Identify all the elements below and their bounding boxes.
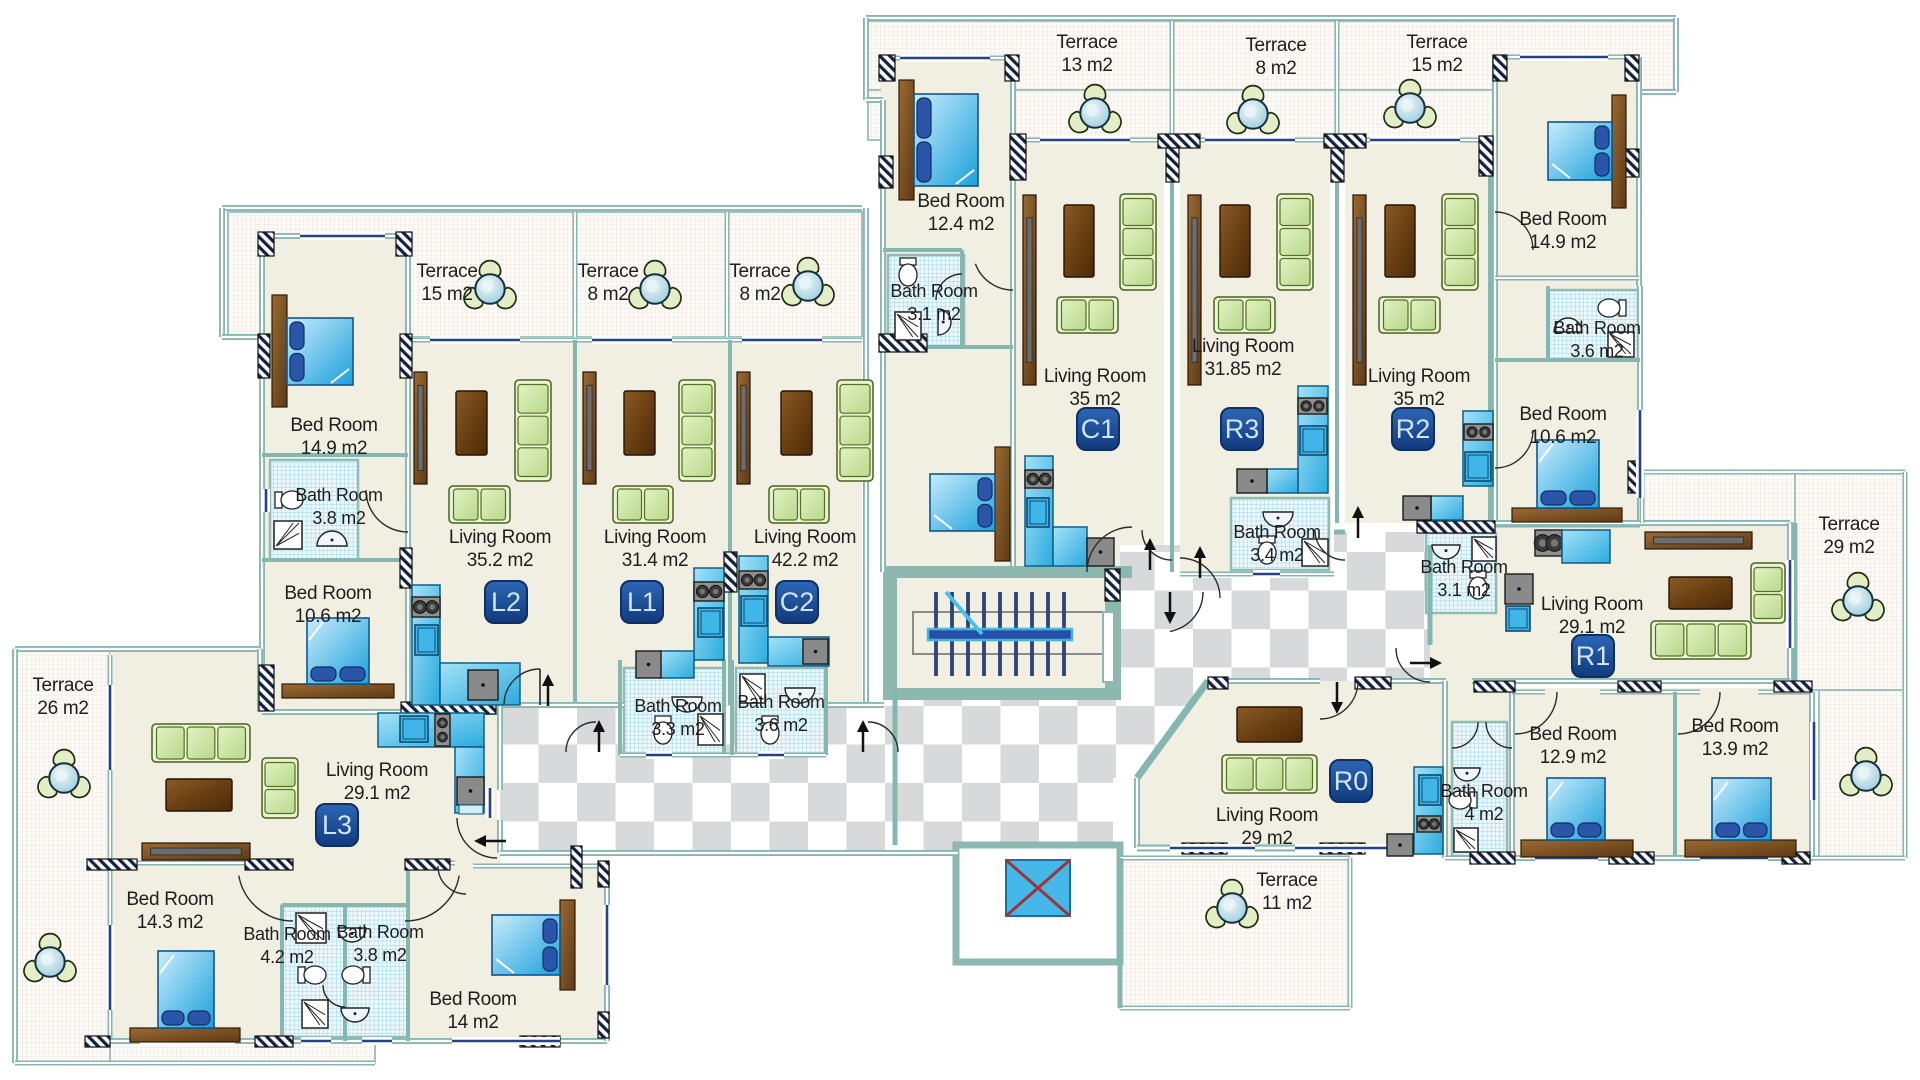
svg-text:26 m2: 26 m2 [37,698,88,719]
svg-text:3.1 m2: 3.1 m2 [907,304,961,324]
svg-text:Bath Room: Bath Room [890,281,977,301]
svg-text:Bath Room: Bath Room [634,696,721,716]
svg-text:Bath Room: Bath Room [1440,781,1527,801]
svg-text:Terrace: Terrace [32,675,93,696]
svg-text:L3: L3 [322,810,352,840]
svg-text:Bed Room: Bed Room [126,889,213,910]
svg-text:3.6 m2: 3.6 m2 [754,715,808,735]
svg-text:14.9 m2: 14.9 m2 [1530,232,1597,253]
svg-text:35 m2: 35 m2 [1069,389,1120,410]
svg-text:Terrace: Terrace [1245,35,1306,56]
svg-text:29 m2: 29 m2 [1241,828,1292,849]
svg-text:15 m2: 15 m2 [1411,55,1462,76]
svg-text:C1: C1 [1081,414,1116,444]
svg-text:Bed Room: Bed Room [429,989,516,1010]
svg-text:Bed Room: Bed Room [1519,209,1606,230]
svg-text:Bed Room: Bed Room [1519,404,1606,425]
svg-text:13 m2: 13 m2 [1061,55,1112,76]
svg-text:Living Room: Living Room [1192,336,1294,357]
svg-text:29.1 m2: 29.1 m2 [344,783,411,804]
svg-text:R1: R1 [1576,641,1611,671]
svg-text:10.6 m2: 10.6 m2 [1530,427,1597,448]
svg-text:R2: R2 [1396,414,1431,444]
svg-text:R3: R3 [1225,414,1260,444]
svg-text:Terrace: Terrace [1406,32,1467,53]
svg-text:42.2 m2: 42.2 m2 [772,550,839,571]
svg-text:3.8 m2: 3.8 m2 [312,508,366,528]
svg-text:Terrace: Terrace [729,261,790,282]
svg-text:Living Room: Living Room [1044,366,1146,387]
svg-text:8 m2: 8 m2 [1255,58,1296,79]
svg-text:3.8 m2: 3.8 m2 [353,945,407,965]
svg-text:14 m2: 14 m2 [447,1012,498,1033]
svg-text:3.4 m2: 3.4 m2 [1250,545,1304,565]
svg-text:Living Room: Living Room [754,527,856,548]
svg-text:12.9 m2: 12.9 m2 [1540,747,1607,768]
svg-text:31.4 m2: 31.4 m2 [622,550,689,571]
svg-text:Bath Room: Bath Room [1553,318,1640,338]
svg-text:Terrace: Terrace [1818,514,1879,535]
svg-text:C2: C2 [780,587,815,617]
svg-text:4.2 m2: 4.2 m2 [260,947,314,967]
svg-text:15 m2: 15 m2 [421,284,472,305]
svg-text:29 m2: 29 m2 [1823,537,1874,558]
svg-text:14.9 m2: 14.9 m2 [301,438,368,459]
svg-text:Living Room: Living Room [1541,594,1643,615]
svg-text:Bed Room: Bed Room [1529,724,1616,745]
svg-text:Bath Room: Bath Room [1233,522,1320,542]
svg-text:Bath Room: Bath Room [336,922,423,942]
svg-text:Terrace: Terrace [1256,870,1317,891]
svg-text:35 m2: 35 m2 [1393,389,1444,410]
svg-text:Bath Room: Bath Room [295,485,382,505]
svg-text:35.2 m2: 35.2 m2 [467,550,534,571]
svg-text:Bed Room: Bed Room [1691,716,1778,737]
svg-text:31.85 m2: 31.85 m2 [1205,359,1282,380]
svg-text:L1: L1 [627,587,657,617]
svg-text:4 m2: 4 m2 [1465,804,1504,824]
svg-text:Bed Room: Bed Room [284,583,371,604]
svg-text:Living Room: Living Room [1216,805,1318,826]
svg-text:10.6 m2: 10.6 m2 [295,606,362,627]
svg-text:Bed Room: Bed Room [917,191,1004,212]
svg-text:3.6 m2: 3.6 m2 [1570,341,1624,361]
svg-text:Living Room: Living Room [604,527,706,548]
svg-text:Terrace: Terrace [416,261,477,282]
svg-text:Terrace: Terrace [1056,32,1117,53]
svg-text:Living Room: Living Room [449,527,551,548]
svg-text:R0: R0 [1334,766,1369,796]
svg-text:Terrace: Terrace [577,261,638,282]
svg-text:Living Room: Living Room [326,760,428,781]
svg-text:3.1 m2: 3.1 m2 [1437,580,1491,600]
svg-text:11 m2: 11 m2 [1262,893,1312,914]
svg-text:14.3 m2: 14.3 m2 [137,912,204,933]
svg-text:L2: L2 [491,587,521,617]
svg-text:8 m2: 8 m2 [739,284,780,305]
svg-text:3.3 m2: 3.3 m2 [651,719,705,739]
svg-text:Bath Room: Bath Room [243,924,330,944]
svg-text:Living Room: Living Room [1368,366,1470,387]
svg-text:8 m2: 8 m2 [587,284,628,305]
svg-text:Bath Room: Bath Room [737,692,824,712]
svg-text:13.9 m2: 13.9 m2 [1702,739,1769,760]
svg-text:Bath Room: Bath Room [1420,557,1507,577]
svg-text:29.1 m2: 29.1 m2 [1559,617,1626,638]
svg-text:Bed Room: Bed Room [290,415,377,436]
svg-text:12.4 m2: 12.4 m2 [928,214,995,235]
